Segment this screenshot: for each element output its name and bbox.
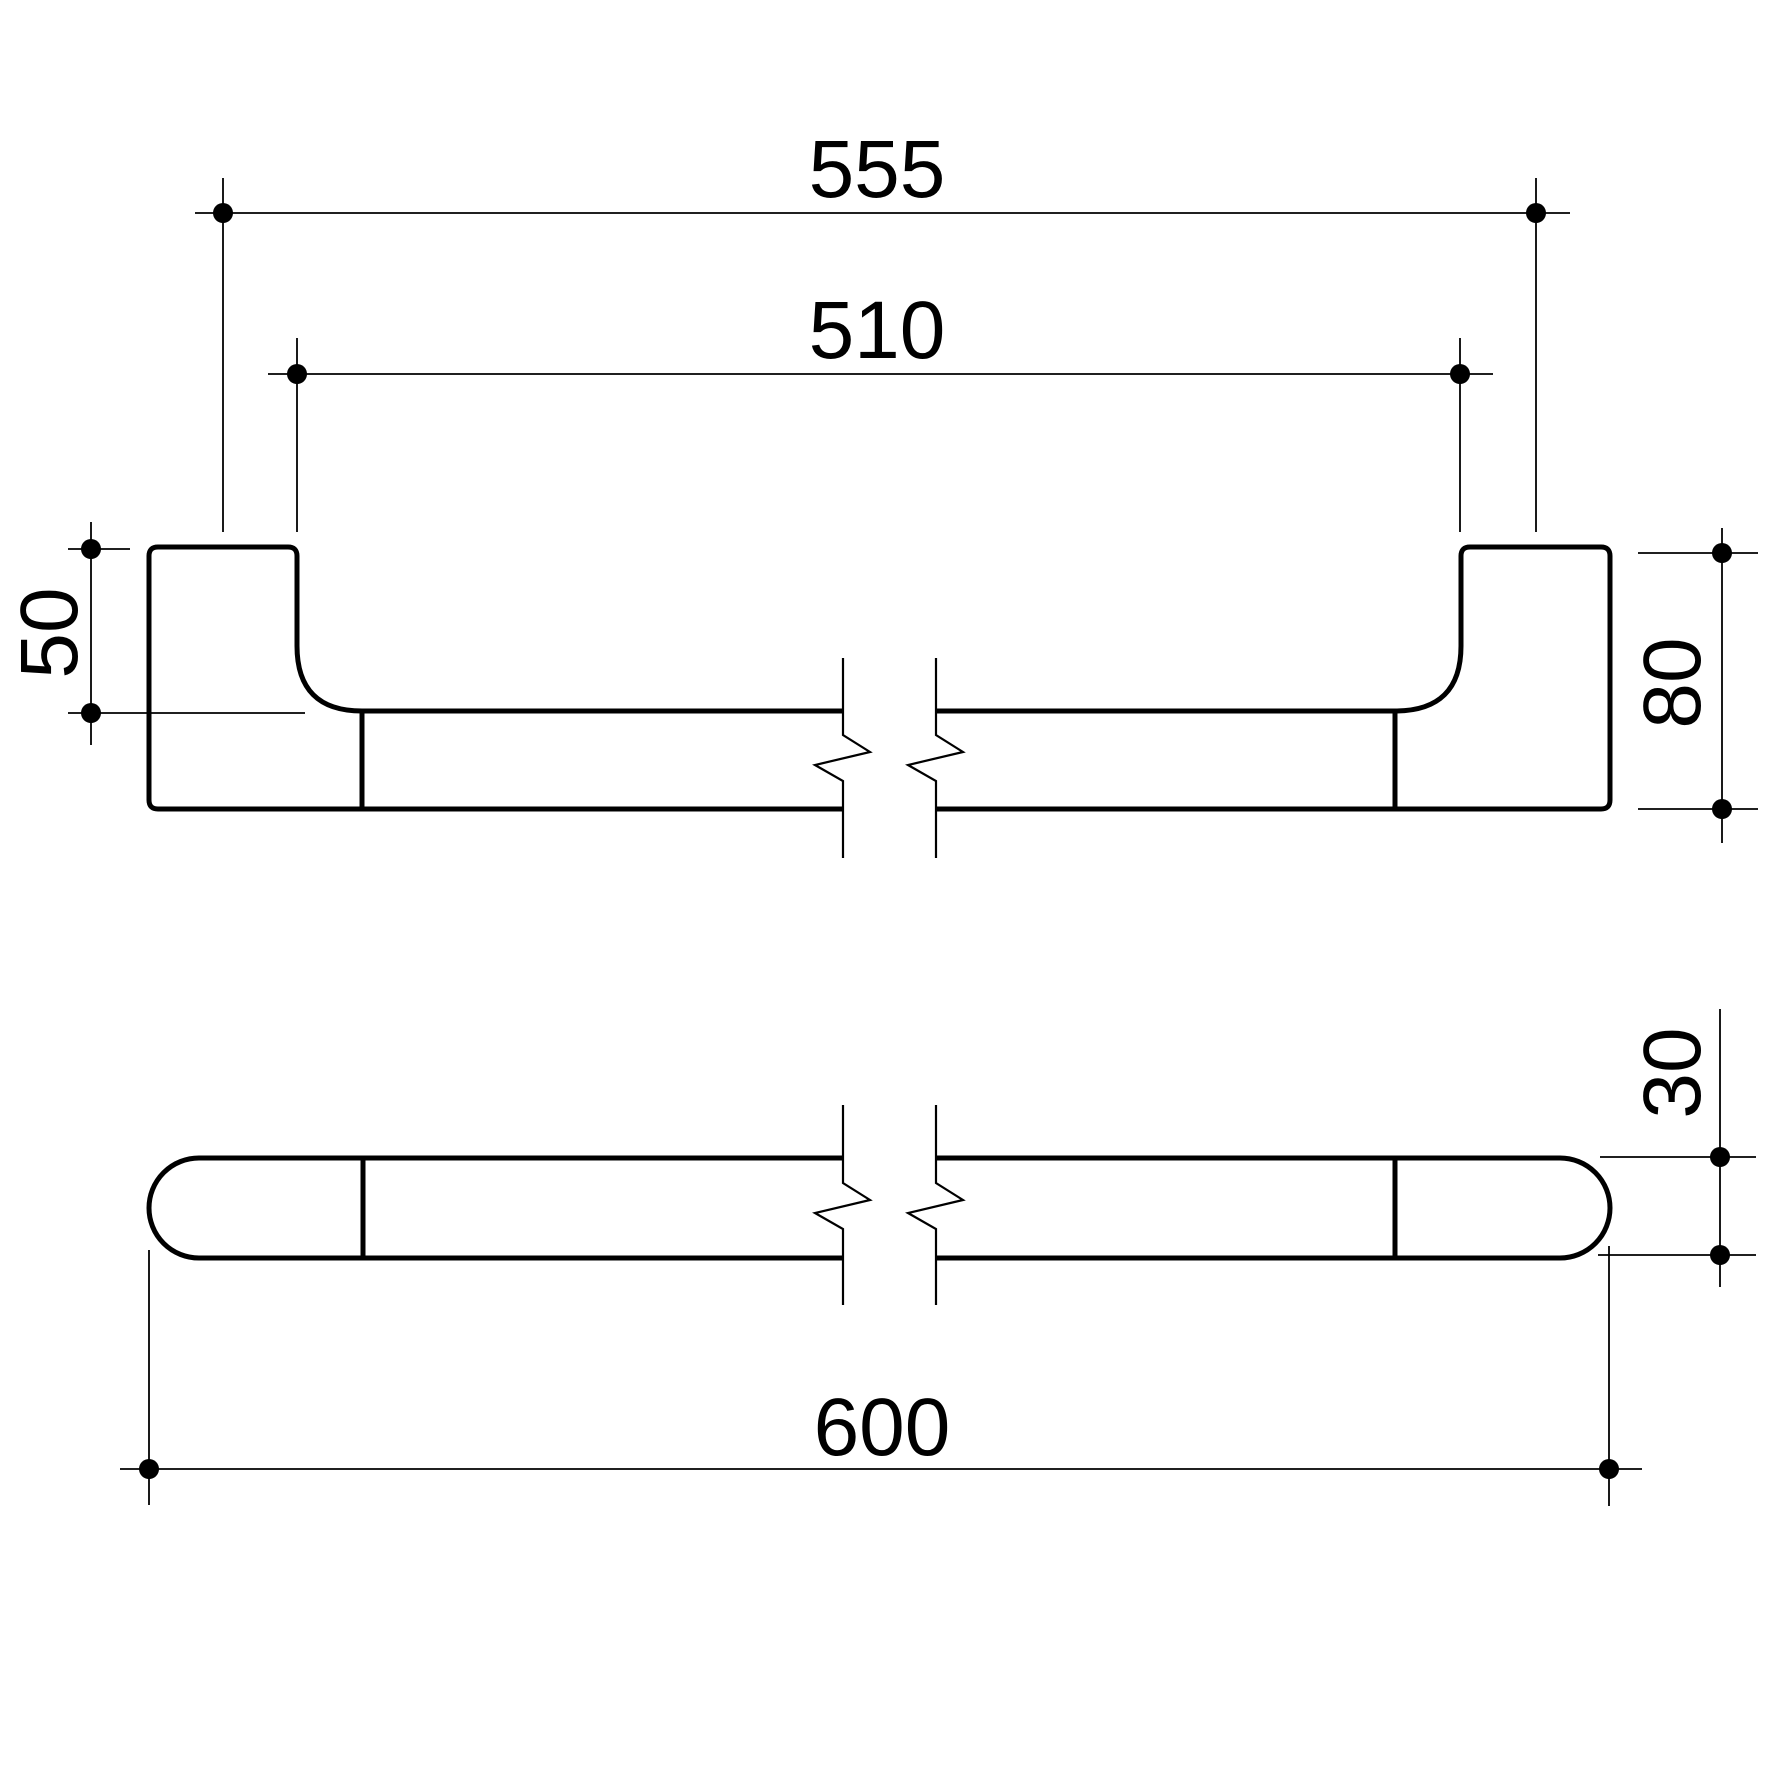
dim-label-555: 555 (809, 124, 946, 215)
dim-50-dot-bottom (81, 703, 101, 723)
plan-view (149, 1105, 1610, 1305)
plan-break-line-left (815, 1105, 870, 1305)
dimension-600: 600 (120, 1246, 1642, 1506)
plan-capsule-left (149, 1158, 843, 1258)
dim-600-dot-right (1599, 1459, 1619, 1479)
drawing-canvas: 555 510 50 80 (0, 0, 1772, 1772)
dimension-80: 80 (1627, 528, 1758, 843)
dimension-50: 50 (4, 522, 305, 745)
dim-80-dot-bottom (1712, 799, 1732, 819)
dim-50-dot-top (81, 539, 101, 559)
dim-510-dot-left (287, 364, 307, 384)
dim-label-510: 510 (809, 285, 946, 376)
dim-555-dot-left (213, 203, 233, 223)
dim-30-dot-top (1710, 1147, 1730, 1167)
dim-label-50: 50 (4, 587, 95, 678)
dim-510-dot-right (1450, 364, 1470, 384)
elevation-left-bracket-outline (149, 547, 843, 809)
front-elevation-view (149, 547, 1610, 858)
plan-break-line-right (908, 1105, 963, 1305)
dimension-510: 510 (268, 285, 1493, 532)
dim-label-80: 80 (1627, 637, 1718, 728)
technical-drawing: 555 510 50 80 (0, 0, 1772, 1772)
dimension-30: 30 (1598, 1009, 1756, 1287)
elevation-break-line-left (815, 658, 870, 858)
dim-label-30: 30 (1627, 1027, 1718, 1118)
dim-30-dot-bottom (1710, 1245, 1730, 1265)
dim-555-dot-right (1526, 203, 1546, 223)
dim-600-dot-left (139, 1459, 159, 1479)
elevation-break-line-right (908, 658, 963, 858)
plan-capsule-right (936, 1158, 1610, 1258)
elevation-right-bracket-outline (936, 547, 1610, 809)
dim-label-600: 600 (814, 1382, 951, 1473)
dim-80-dot-top (1712, 543, 1732, 563)
